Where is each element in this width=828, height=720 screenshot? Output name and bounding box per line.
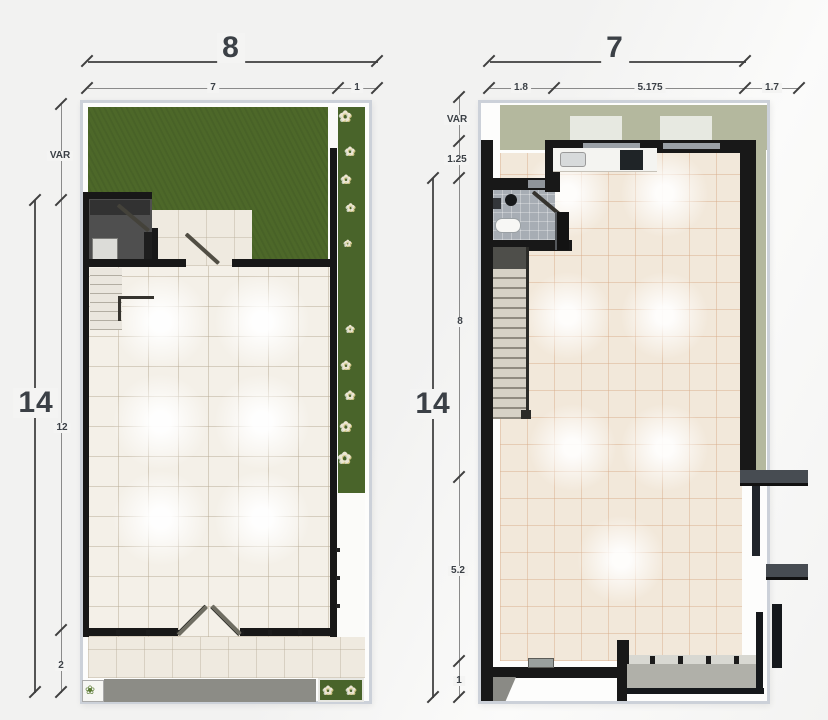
planter-box-left: ❀: [82, 680, 104, 702]
stair-rail-horizontal: [118, 296, 154, 299]
plant-icon: ✿: [323, 684, 333, 696]
flower-icon: ✿: [339, 109, 352, 124]
dim-line-right-side-overall: [432, 178, 434, 698]
dim-label-right-width: 7: [601, 33, 629, 63]
dim-label-left-width: 8: [217, 33, 245, 63]
flower-icon: ✿: [341, 173, 351, 185]
stair-newel: [521, 410, 531, 419]
planter-box-right: ✿ ✿: [318, 678, 364, 702]
dim-label-left-height-seg1: VAR: [47, 151, 73, 161]
stair-rail: [526, 247, 529, 419]
patio-tiles: [150, 210, 252, 266]
dim-label-right-height-seg3: 8: [454, 317, 466, 327]
utility-top-wall: [88, 192, 152, 199]
bathroom-fixture: [493, 198, 501, 209]
left-floor-plan: ✿ ✿ ✿ ✿ ✿ ✿ ✿ ✿ ✿ ✿: [80, 100, 372, 704]
sidewalk: [104, 679, 316, 702]
balcony-ledge: [627, 664, 757, 689]
outer-pier-wall: [772, 604, 782, 668]
front-wall-left: [88, 628, 178, 636]
main-room-top-wall-right: [232, 259, 330, 267]
entry-tiles: [88, 637, 365, 678]
mullion-post: [298, 630, 302, 635]
dim-label-left-height: 14: [13, 388, 58, 418]
dim-line-right-side-segments: [459, 97, 460, 698]
plant-icon: ✿: [346, 684, 356, 696]
flower-icon: ✿: [346, 325, 354, 335]
balcony-edge-wall: [627, 688, 764, 694]
dim-label-right-height-seg4: 5.2: [448, 566, 468, 576]
fence-post: [336, 604, 340, 608]
front-wall: [486, 667, 627, 678]
toilet: [495, 218, 521, 233]
right-floor-plan: [478, 100, 770, 704]
dim-label-right-width-seg1: 1.8: [511, 83, 531, 93]
dim-label-right-height-seg2: 1.25: [444, 155, 469, 165]
mullion-post: [146, 630, 150, 635]
main-room-top-wall-left: [88, 259, 186, 267]
canopy-fin-lower: [766, 564, 808, 580]
entry-ramp: [493, 677, 516, 701]
right-side-wall: [330, 148, 337, 637]
flower-icon: ✿: [345, 145, 355, 157]
dim-label-left-width-seg1: 7: [207, 83, 219, 93]
front-wall-right: [240, 628, 330, 636]
dim-label-right-width-seg2: 5.175: [634, 83, 665, 93]
canopy-fin-upper: [740, 470, 808, 486]
left-side-wall: [83, 192, 89, 637]
flower-icon: ✿: [338, 451, 351, 467]
staircase: [493, 269, 529, 419]
mullion-post: [116, 630, 120, 635]
bathroom-sink: [505, 194, 517, 206]
dim-label-right-height-seg1: VAR: [444, 115, 470, 125]
dim-line-left-side-segments: [61, 104, 62, 693]
stove-cooktop: [620, 150, 643, 170]
door-jamb-wall: [752, 486, 760, 556]
flower-icon: ✿: [340, 419, 352, 433]
plant-icon: ❀: [85, 684, 95, 696]
planting-strip: ✿ ✿ ✿ ✿ ✿ ✿ ✿ ✿ ✿ ✿: [338, 107, 365, 493]
flower-icon: ✿: [345, 389, 355, 401]
main-room-floor: [88, 266, 330, 637]
flower-icon: ✿: [341, 359, 351, 371]
front-wall-return: [617, 667, 627, 701]
kitchen-sink: [560, 152, 586, 167]
fence-post: [336, 548, 340, 552]
mullion-post: [268, 630, 272, 635]
flower-icon: ✿: [344, 239, 352, 248]
left-side-wall: [481, 140, 493, 701]
floor-plans-canvas: ✿ ✿ ✿ ✿ ✿ ✿ ✿ ✿ ✿ ✿: [0, 0, 828, 720]
entry-step: [528, 658, 554, 668]
fence-post: [336, 576, 340, 580]
stair-landing: [493, 247, 529, 269]
flower-icon: ✿: [346, 203, 355, 214]
dim-label-right-width-seg3: 1.7: [762, 83, 782, 93]
tall-cabinet: [555, 212, 569, 250]
right-side-wall: [740, 147, 756, 473]
dim-label-left-height-seg3: 2: [55, 661, 67, 671]
rear-window: [663, 143, 720, 149]
stair-rail-vertical: [118, 299, 121, 321]
dim-label-right-height: 14: [410, 389, 455, 419]
balcony-right-wall: [756, 612, 763, 694]
dim-line-left-side-overall: [34, 200, 36, 693]
dim-label-right-height-seg5: 1: [453, 676, 465, 686]
dim-label-left-height-seg2: 12: [53, 423, 70, 433]
dim-label-left-width-seg2: 1: [351, 83, 363, 93]
